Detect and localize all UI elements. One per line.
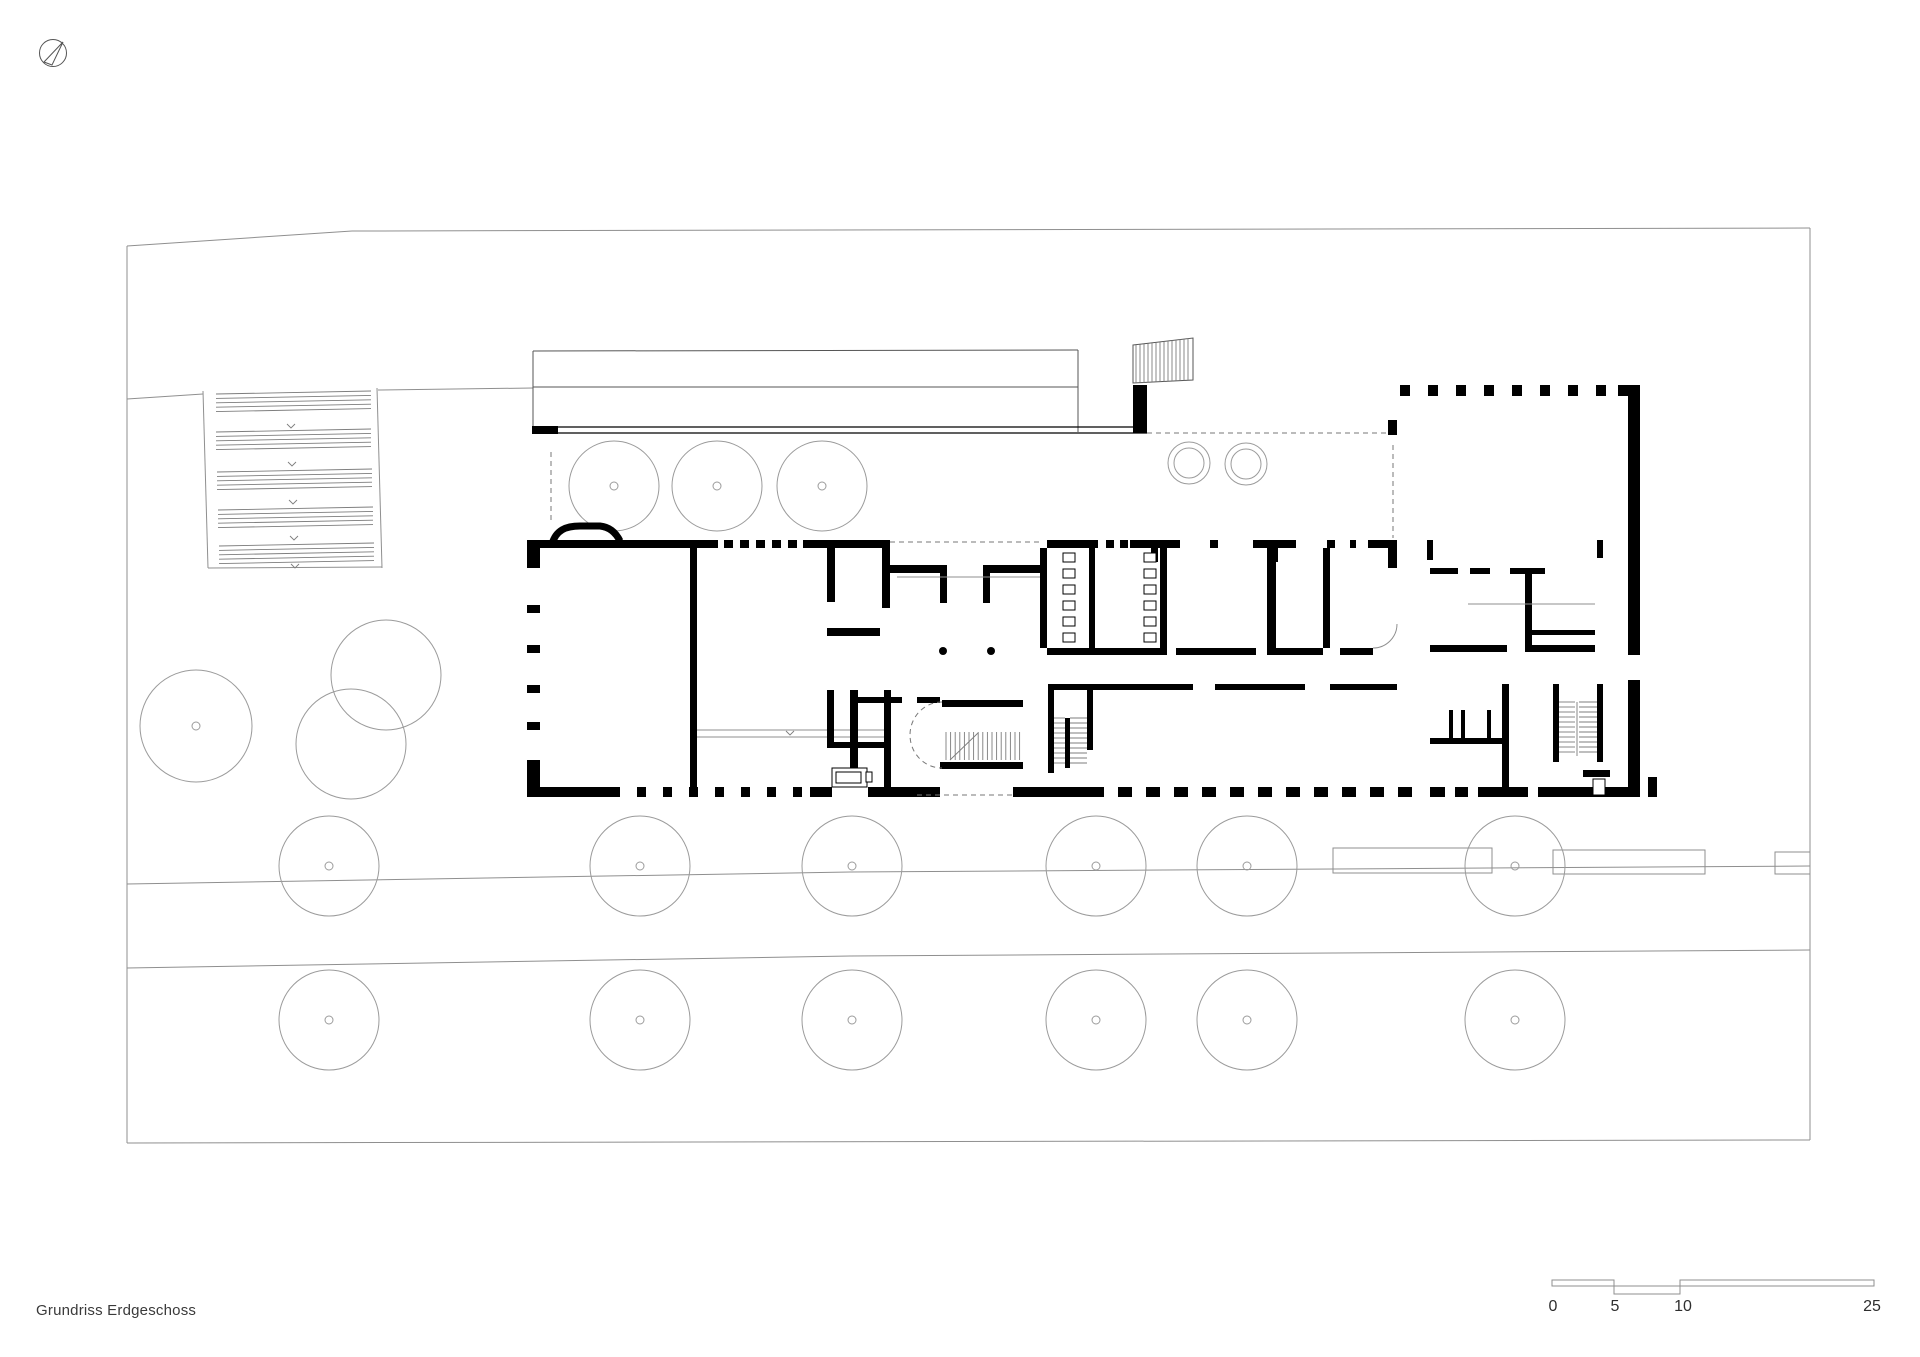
scale-label-0: 0 <box>1549 1298 1558 1316</box>
floor-plan-svg <box>0 0 1920 1357</box>
site-plan: Grundriss Erdgeschoss 0 5 10 25 <box>0 0 1920 1357</box>
scale-label-10: 10 <box>1674 1298 1692 1316</box>
scale-label-25: 25 <box>1863 1298 1881 1316</box>
scale-bar-labels: 0 5 10 25 <box>0 1298 1920 1322</box>
scale-label-5: 5 <box>1611 1298 1620 1316</box>
